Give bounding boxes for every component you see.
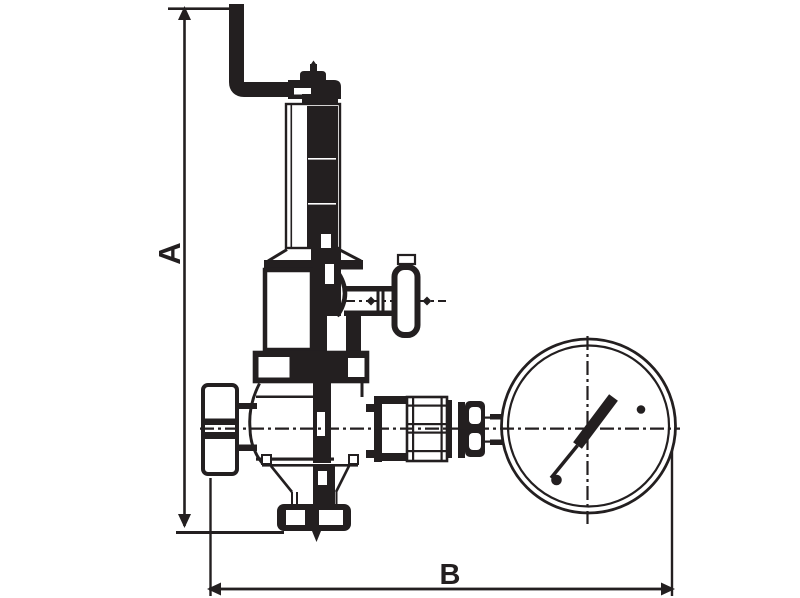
svg-text:A: A <box>152 242 187 264</box>
svg-text:B: B <box>440 559 461 591</box>
